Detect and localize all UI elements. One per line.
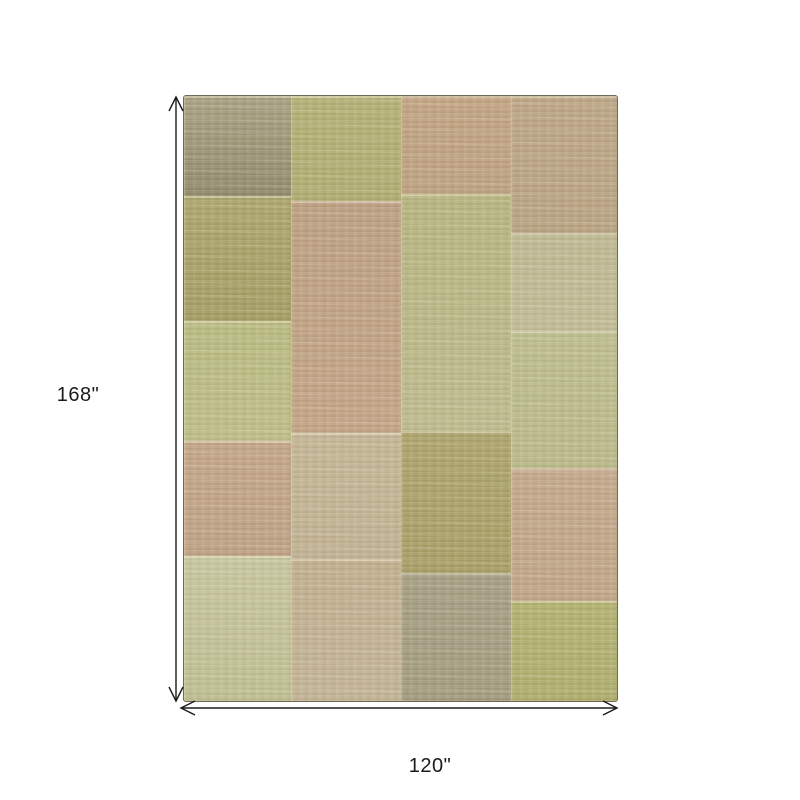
- rug-patch-col4-row2: [511, 233, 617, 331]
- rug-patch-col1-row1: [184, 96, 291, 196]
- rug-patch-col4-row3: [511, 331, 617, 468]
- rug-patch-col3-row1: [401, 96, 511, 194]
- rug-patch-col4-row4: [511, 468, 617, 601]
- rug-patch-col1-row3: [184, 321, 291, 441]
- rug-patch-col1-row4: [184, 441, 291, 556]
- width-dimension-label: 120": [400, 755, 460, 778]
- rug-patch-col2-row3: [291, 433, 401, 559]
- product-dimension-diagram: 168" 120": [0, 0, 800, 800]
- rug-patch-col4-row5: [511, 601, 617, 701]
- rug-patch-col1-row2: [184, 196, 291, 321]
- rug-image: [183, 95, 618, 702]
- rug-patch-col2-row1: [291, 96, 401, 201]
- rug-patch-col2-row4: [291, 559, 401, 701]
- height-dimension-arrow: [169, 97, 183, 701]
- height-dimension-label: 168": [48, 384, 108, 407]
- rug-patch-col1-row5: [184, 556, 291, 701]
- rug-patch-col3-row3: [401, 431, 511, 573]
- width-dimension-arrow: [181, 701, 617, 715]
- rug-patch-col3-row2: [401, 194, 511, 431]
- rug-patch-col4-row1: [511, 96, 617, 233]
- rug-patch-col2-row2: [291, 201, 401, 433]
- rug-patch-col3-row4: [401, 573, 511, 701]
